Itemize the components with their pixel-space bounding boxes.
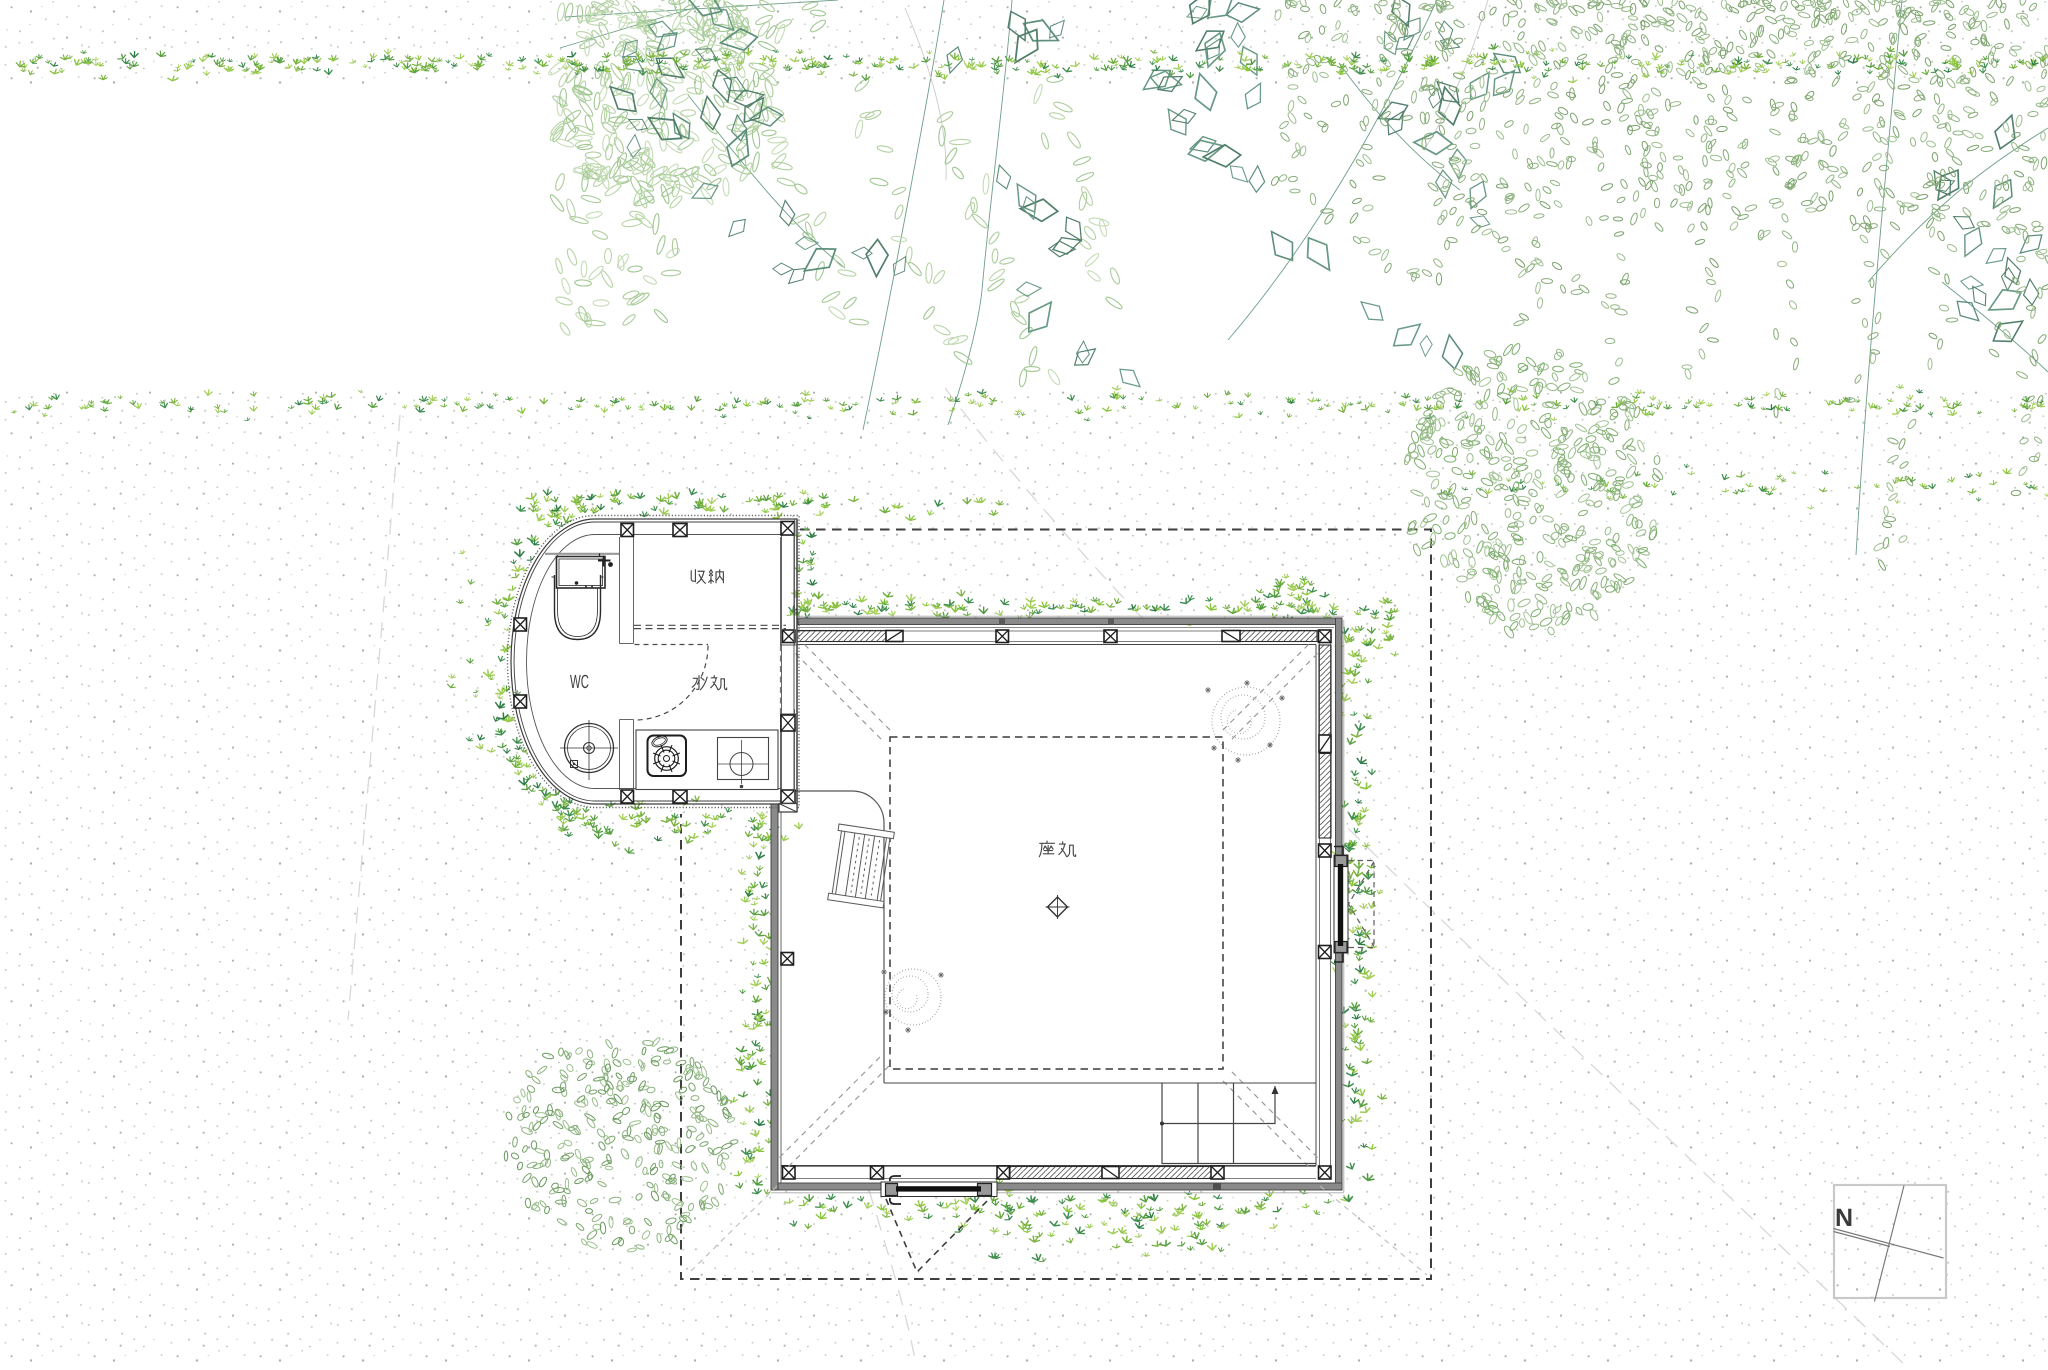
- svg-text:WC: WC: [570, 672, 589, 693]
- svg-text:N: N: [1835, 1204, 1853, 1232]
